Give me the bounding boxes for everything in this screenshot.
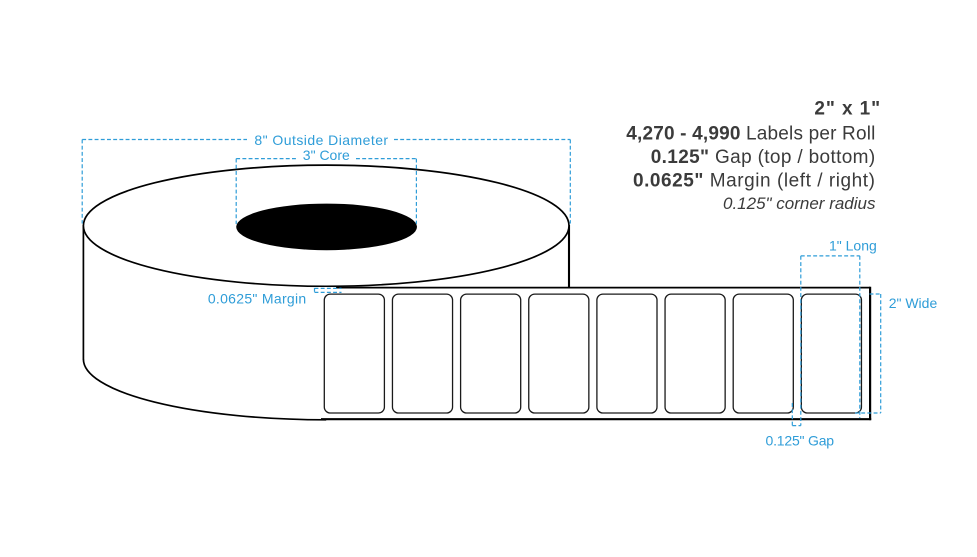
svg-text:8" Outside Diameter: 8" Outside Diameter — [254, 132, 388, 148]
svg-text:0.125" Gap: 0.125" Gap — [766, 433, 835, 449]
svg-text:0.125" corner radius: 0.125" corner radius — [723, 194, 876, 213]
svg-text:2" x 1": 2" x 1" — [814, 99, 881, 120]
svg-text:2" Wide: 2" Wide — [889, 295, 938, 311]
svg-text:0.125" Gap (top / bottom): 0.125" Gap (top / bottom) — [651, 147, 876, 168]
svg-text:1" Long: 1" Long — [829, 237, 877, 253]
svg-text:4,270 - 4,990 Labels per Roll: 4,270 - 4,990 Labels per Roll — [626, 123, 875, 144]
svg-text:3" Core: 3" Core — [303, 147, 350, 163]
svg-text:0.0625" Margin (left / right): 0.0625" Margin (left / right) — [633, 171, 876, 192]
svg-text:0.0625" Margin: 0.0625" Margin — [208, 291, 307, 307]
